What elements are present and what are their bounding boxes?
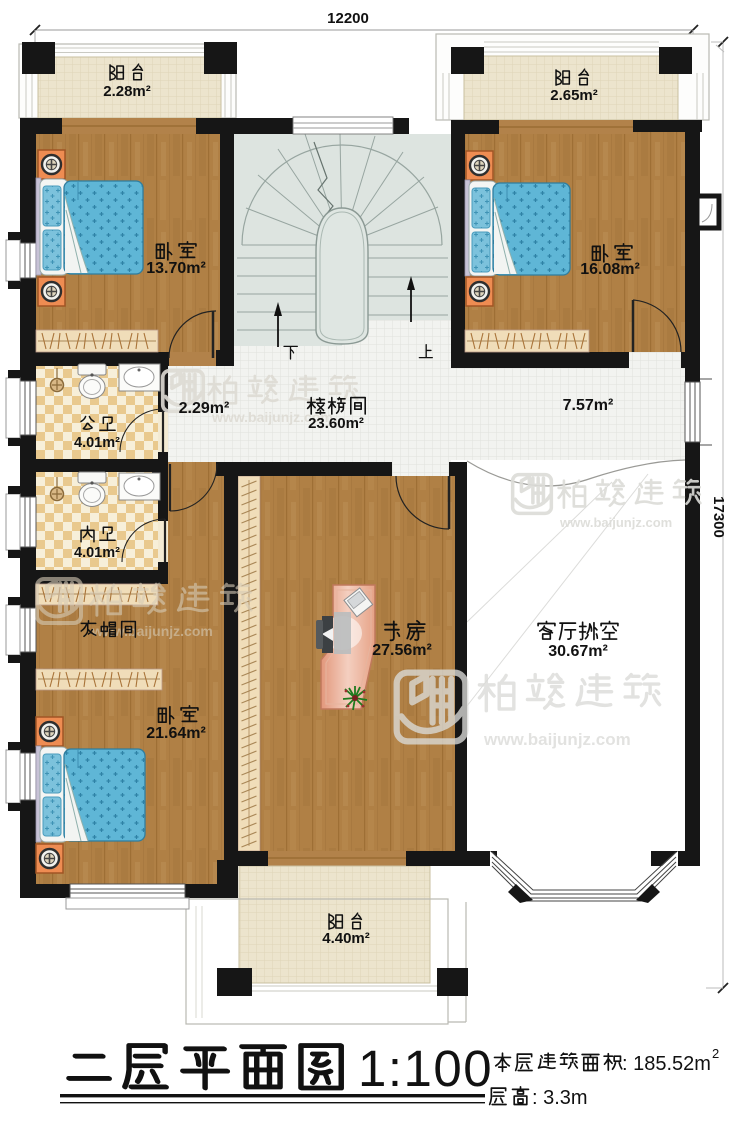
svg-text:23.60m²: 23.60m² [308, 415, 364, 432]
svg-text:4.01m²: 4.01m² [74, 545, 120, 561]
svg-text:2: 2 [712, 1046, 719, 1061]
svg-text:: 185.52m: : 185.52m [622, 1053, 711, 1075]
svg-text:1:100: 1:100 [358, 1040, 493, 1097]
svg-text:17300: 17300 [710, 496, 727, 538]
svg-text:2.29m²: 2.29m² [179, 400, 230, 417]
svg-text:13.70m²: 13.70m² [146, 260, 206, 277]
svg-text:2.65m²: 2.65m² [550, 87, 598, 104]
svg-text:4.01m²: 4.01m² [74, 435, 120, 451]
svg-text:12200: 12200 [327, 10, 369, 27]
svg-text:2.28m²: 2.28m² [103, 83, 151, 100]
svg-text:27.56m²: 27.56m² [372, 642, 432, 659]
svg-text:www.baijunjz.com: www.baijunjz.com [483, 730, 631, 749]
svg-text:7.57m²: 7.57m² [563, 397, 614, 414]
svg-text:16.08m²: 16.08m² [580, 261, 640, 278]
svg-text:www.baijunjz.com: www.baijunjz.com [559, 515, 672, 530]
svg-text:4.40m²: 4.40m² [322, 930, 370, 947]
svg-text:: 3.3m: : 3.3m [532, 1087, 588, 1109]
svg-text:30.67m²: 30.67m² [548, 643, 608, 660]
svg-text:21.64m²: 21.64m² [146, 725, 206, 742]
